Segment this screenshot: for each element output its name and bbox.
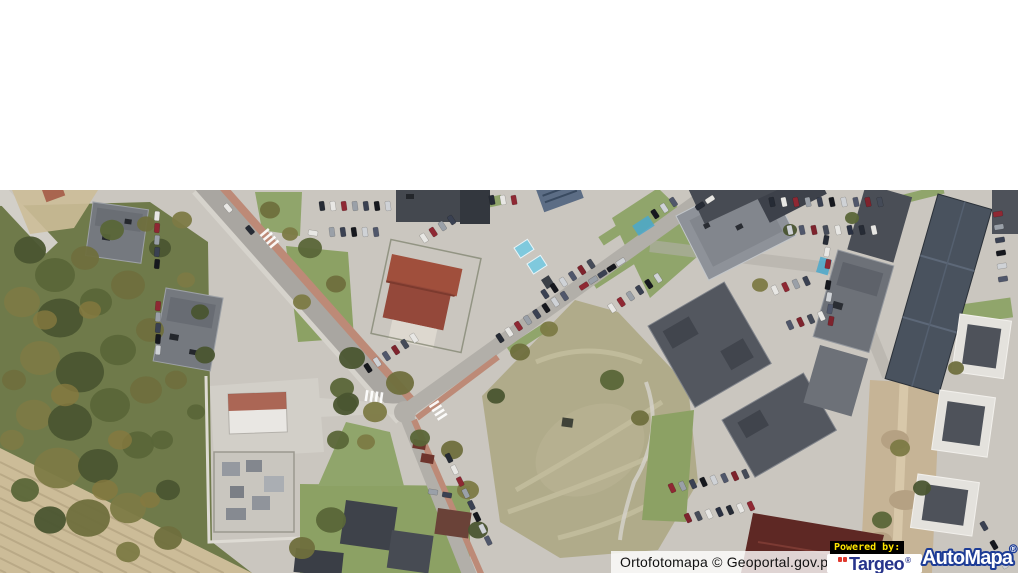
targeo-registered-mark: ® — [905, 556, 911, 565]
targeo-quote-icon — [838, 557, 847, 562]
powered-by-badge: Powered by: — [830, 541, 904, 554]
app-window: Ortofotomapa © Geoportal.gov.pl Powered … — [0, 0, 1018, 573]
white-trim-roof — [932, 390, 996, 457]
substation-building — [228, 392, 287, 434]
targeo-brand-text: Targeo — [849, 555, 904, 573]
automapa-registered-mark: ® — [1010, 544, 1017, 554]
house-roof — [434, 508, 471, 538]
building-roof — [396, 190, 490, 224]
powered-by-label: Powered by: — [834, 542, 900, 553]
map-attribution: Ortofotomapa © Geoportal.gov.pl — [611, 551, 841, 573]
aerial-orthophoto-imagery[interactable] — [0, 190, 1018, 573]
blank-canvas-area — [0, 0, 1018, 190]
field-shed — [561, 417, 573, 427]
map-viewport — [0, 190, 1018, 573]
automapa-logo: AutoMapa ® — [920, 540, 1018, 572]
house-roof — [340, 500, 398, 551]
attribution-text: Ortofotomapa © Geoportal.gov.pl — [620, 554, 832, 570]
automapa-brand-text: AutoMapa — [922, 547, 1014, 569]
targeo-logo: Targeo ® — [827, 554, 922, 573]
house-roof — [387, 530, 434, 573]
